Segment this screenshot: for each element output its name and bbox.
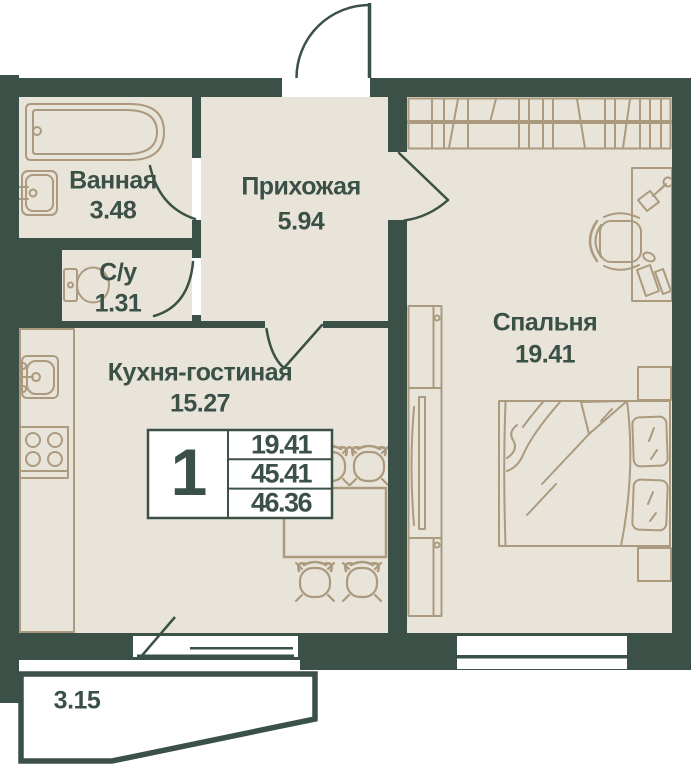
kitchen-living-area: 15.27 xyxy=(170,392,230,417)
info-table-living-area: 19.41 xyxy=(251,432,311,459)
bathroom-label: Ванная xyxy=(69,169,157,194)
info-table-rooms-count: 1 xyxy=(171,439,206,505)
bathroom-area: 3.48 xyxy=(90,199,137,224)
bedroom-window-icon xyxy=(457,636,627,669)
floor-plan-page: Ванная 3.48 С/у 1.31 Прихожая 5.94 Кухня… xyxy=(0,0,691,779)
info-table-area-without-balcony: 45.41 xyxy=(251,461,311,488)
info-table-total-area: 46.36 xyxy=(251,490,311,517)
toilet-label: С/у xyxy=(99,261,136,286)
toilet-area: 1.31 xyxy=(95,292,142,317)
balcony-area: 3.15 xyxy=(54,689,101,714)
bedroom-door-gap xyxy=(388,152,407,220)
floor-plan xyxy=(0,0,691,779)
bedroom-label: Спальня xyxy=(493,311,598,336)
entrance-door-icon xyxy=(297,3,370,78)
kitchen-living-label: Кухня-гостиная xyxy=(108,361,293,386)
hallway-area: 5.94 xyxy=(278,210,325,235)
bathroom-door-gap xyxy=(192,158,201,220)
hallway-label: Прихожая xyxy=(241,175,360,200)
bedroom-area: 19.41 xyxy=(515,343,575,368)
kitchen-door-gap xyxy=(265,321,323,328)
